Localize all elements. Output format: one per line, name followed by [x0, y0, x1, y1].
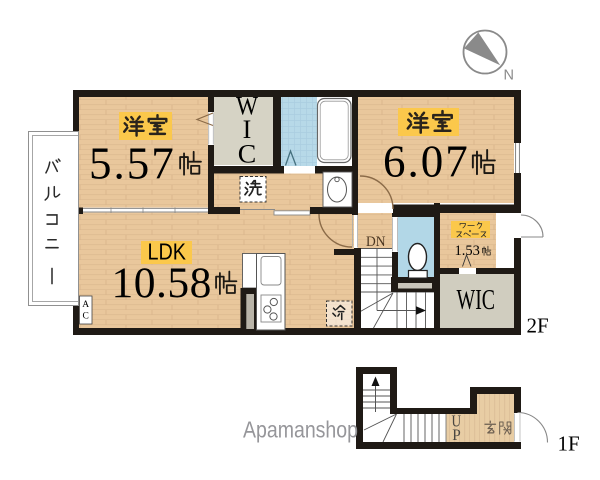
- svg-text:1F: 1F: [558, 432, 580, 456]
- svg-text:6.07: 6.07: [383, 137, 470, 187]
- svg-text:WIC: WIC: [457, 284, 496, 316]
- svg-text:C: C: [83, 312, 89, 322]
- svg-text:C: C: [238, 140, 257, 169]
- svg-text:P: P: [452, 427, 461, 444]
- svg-text:N: N: [504, 68, 514, 84]
- svg-text:2F: 2F: [527, 314, 549, 338]
- svg-text:10.58: 10.58: [112, 259, 212, 307]
- svg-text:A: A: [82, 300, 89, 310]
- svg-text:Apamanshop: Apamanshop: [243, 417, 358, 443]
- svg-text:5.57: 5.57: [89, 139, 176, 189]
- svg-text:DN: DN: [366, 234, 386, 250]
- svg-text:1.53: 1.53: [455, 243, 480, 259]
